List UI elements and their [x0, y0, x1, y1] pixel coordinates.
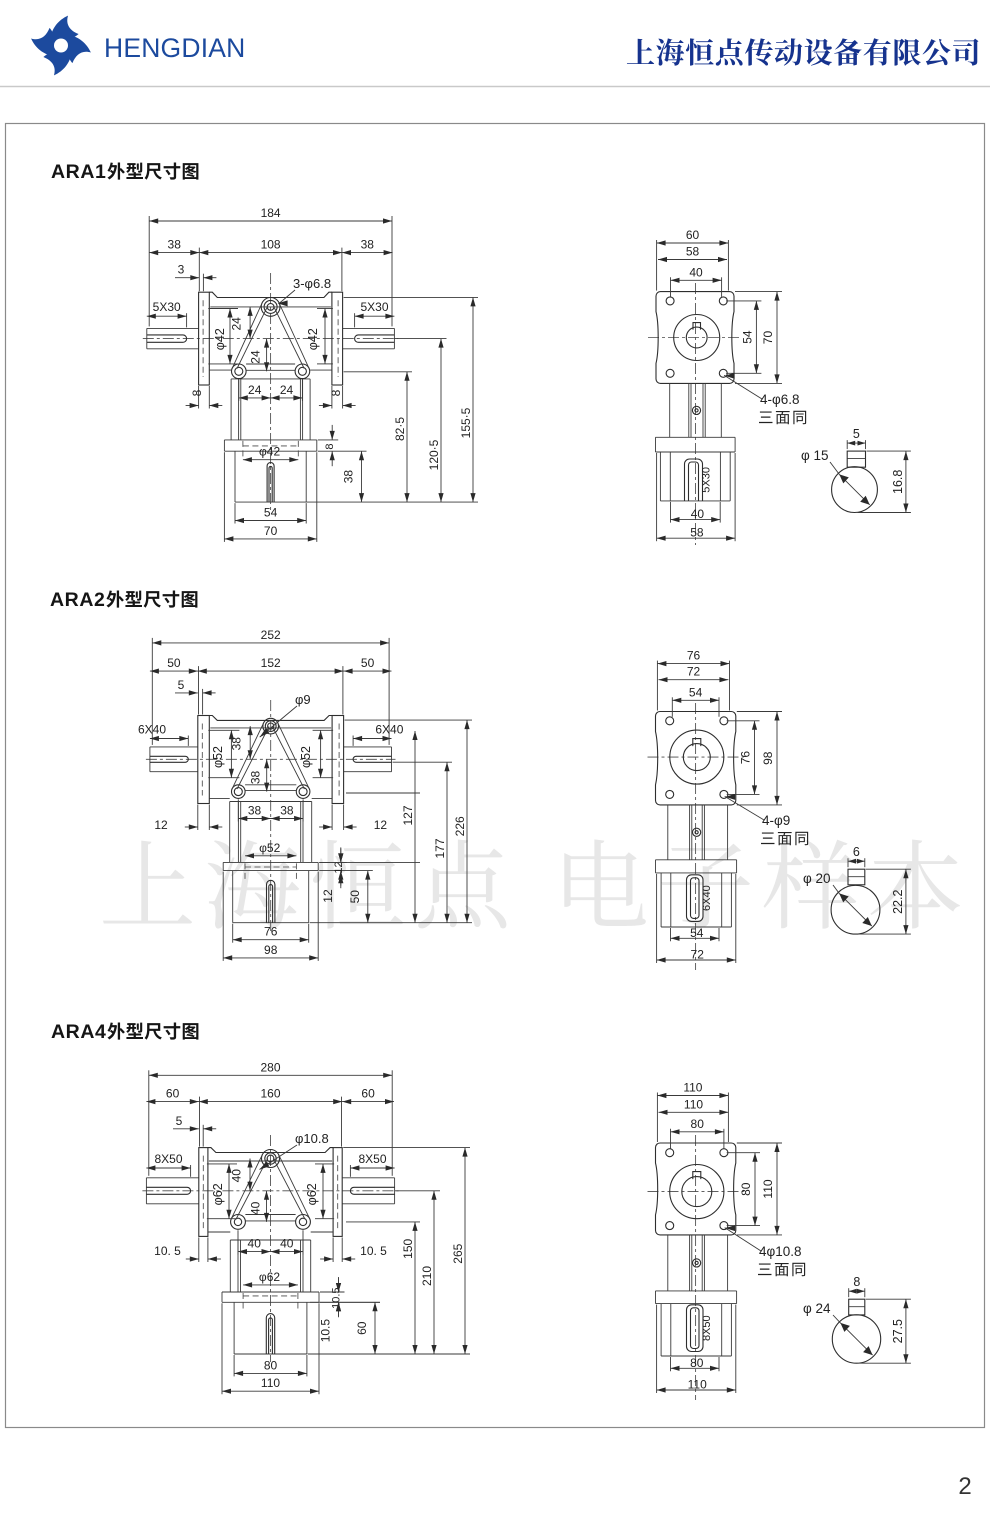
svg-text:127: 127 [401, 805, 415, 825]
svg-text:12: 12 [374, 818, 388, 832]
svg-text:6: 6 [853, 845, 860, 859]
svg-text:58: 58 [690, 526, 704, 540]
svg-text:φ62: φ62 [211, 1183, 225, 1205]
svg-text:6X40: 6X40 [375, 723, 403, 737]
svg-text:4φ10.8: 4φ10.8 [759, 1244, 802, 1259]
svg-text:80: 80 [739, 1182, 753, 1196]
svg-text:φ52: φ52 [299, 746, 313, 768]
svg-text:80: 80 [690, 1356, 704, 1370]
svg-text:4-φ6.8: 4-φ6.8 [760, 392, 800, 407]
svg-text:5X30: 5X30 [701, 467, 713, 493]
svg-text:80: 80 [264, 1358, 278, 1372]
svg-text:110: 110 [261, 1376, 280, 1390]
svg-text:152: 152 [261, 656, 281, 670]
svg-text:50: 50 [348, 890, 362, 904]
svg-text:φ 15: φ 15 [801, 448, 829, 463]
svg-text:27.5: 27.5 [891, 1319, 905, 1343]
svg-text:210: 210 [420, 1266, 434, 1286]
svg-text:54: 54 [690, 926, 704, 940]
svg-text:φ42: φ42 [306, 328, 320, 350]
svg-text:3: 3 [178, 263, 185, 277]
svg-text:8X50: 8X50 [154, 1152, 182, 1166]
svg-text:38: 38 [280, 804, 294, 818]
svg-text:2: 2 [958, 1473, 971, 1500]
svg-text:φ42: φ42 [259, 445, 280, 459]
svg-text:24: 24 [280, 383, 294, 397]
svg-text:φ42: φ42 [213, 328, 227, 350]
svg-text:60: 60 [686, 228, 700, 242]
svg-text:φ9: φ9 [295, 692, 311, 707]
svg-text:5: 5 [853, 427, 860, 441]
svg-text:226: 226 [453, 816, 467, 836]
svg-text:72: 72 [687, 665, 701, 679]
svg-text:98: 98 [761, 751, 775, 765]
svg-text:10. 5: 10. 5 [154, 1244, 181, 1258]
svg-text:10.5: 10.5 [331, 1287, 343, 1308]
svg-text:4-φ9: 4-φ9 [762, 813, 790, 828]
svg-text:80: 80 [691, 1117, 705, 1131]
svg-text:ARA1: ARA1 [51, 161, 107, 183]
svg-text:98: 98 [264, 943, 278, 957]
svg-text:8: 8 [324, 443, 336, 449]
svg-text:38: 38 [361, 238, 375, 252]
svg-text:184: 184 [261, 206, 281, 220]
svg-text:155·5: 155·5 [459, 407, 473, 438]
svg-text:8X50: 8X50 [358, 1152, 386, 1166]
svg-text:50: 50 [361, 656, 375, 670]
svg-text:φ52: φ52 [259, 841, 280, 855]
svg-text:82·5: 82·5 [393, 417, 407, 441]
svg-text:40: 40 [230, 1169, 244, 1183]
svg-text:110: 110 [761, 1179, 775, 1198]
svg-text:76: 76 [264, 925, 278, 939]
svg-text:8X50: 8X50 [701, 1315, 713, 1341]
svg-text:72: 72 [691, 948, 705, 962]
svg-text:120·5: 120·5 [427, 439, 441, 470]
svg-text:60: 60 [166, 1087, 180, 1101]
svg-text:40: 40 [249, 1201, 263, 1215]
svg-text:76: 76 [739, 751, 753, 765]
svg-text:HENGDIAN: HENGDIAN [104, 33, 245, 63]
svg-text:12: 12 [321, 889, 335, 903]
svg-text:3-φ6.8: 3-φ6.8 [293, 276, 331, 291]
svg-text:φ52: φ52 [211, 746, 225, 768]
svg-text:6X40: 6X40 [701, 885, 713, 911]
svg-text:58: 58 [686, 245, 700, 259]
svg-text:110: 110 [688, 1378, 707, 1392]
svg-text:110: 110 [683, 1081, 702, 1095]
svg-text:ARA2: ARA2 [50, 589, 106, 611]
svg-text:252: 252 [261, 628, 281, 642]
svg-text:φ62: φ62 [305, 1183, 319, 1205]
svg-text:38: 38 [248, 804, 262, 818]
svg-text:φ 24: φ 24 [803, 1301, 831, 1316]
svg-text:10. 5: 10. 5 [360, 1244, 387, 1258]
svg-text:70: 70 [761, 331, 775, 345]
svg-text:38: 38 [230, 737, 244, 751]
svg-text:φ 20: φ 20 [803, 871, 831, 886]
svg-text:60: 60 [361, 1087, 375, 1101]
svg-text:24: 24 [248, 383, 262, 397]
svg-text:54: 54 [689, 685, 703, 699]
svg-text:60: 60 [355, 1321, 369, 1335]
svg-text:5: 5 [178, 678, 185, 692]
svg-text:5: 5 [176, 1114, 183, 1128]
svg-text:ARA4: ARA4 [51, 1021, 107, 1043]
svg-text:150: 150 [401, 1238, 415, 1258]
svg-text:54: 54 [264, 506, 278, 520]
svg-text:108: 108 [261, 238, 281, 252]
svg-text:8: 8 [853, 1275, 860, 1289]
svg-text:265: 265 [451, 1243, 465, 1263]
svg-text:5X30: 5X30 [360, 300, 388, 314]
svg-text:5X30: 5X30 [153, 300, 181, 314]
svg-text:16.8: 16.8 [891, 470, 905, 494]
svg-text:10.5: 10.5 [319, 1319, 333, 1343]
svg-text:76: 76 [687, 649, 701, 663]
svg-text:22.2: 22.2 [891, 889, 905, 913]
svg-text:38: 38 [249, 771, 263, 785]
svg-text:280: 280 [260, 1060, 280, 1074]
svg-text:38: 38 [342, 470, 356, 484]
svg-text:24: 24 [249, 350, 263, 364]
svg-text:40: 40 [689, 265, 703, 279]
svg-text:8: 8 [190, 389, 204, 396]
svg-text:38: 38 [168, 238, 182, 252]
svg-text:8: 8 [329, 389, 343, 396]
svg-text:40: 40 [691, 507, 705, 521]
svg-text:φ62: φ62 [259, 1270, 280, 1284]
svg-text:177: 177 [433, 838, 447, 858]
svg-text:160: 160 [260, 1087, 280, 1101]
svg-text:12: 12 [154, 818, 168, 832]
svg-text:70: 70 [264, 524, 278, 538]
svg-text:24: 24 [230, 317, 244, 331]
svg-text:40: 40 [280, 1237, 294, 1251]
svg-text:φ10.8: φ10.8 [295, 1131, 329, 1146]
svg-text:12: 12 [333, 861, 345, 873]
svg-text:54: 54 [740, 330, 754, 344]
svg-text:6X40: 6X40 [138, 723, 166, 737]
svg-text:50: 50 [167, 656, 181, 670]
svg-text:40: 40 [248, 1237, 262, 1251]
svg-text:110: 110 [684, 1097, 703, 1111]
